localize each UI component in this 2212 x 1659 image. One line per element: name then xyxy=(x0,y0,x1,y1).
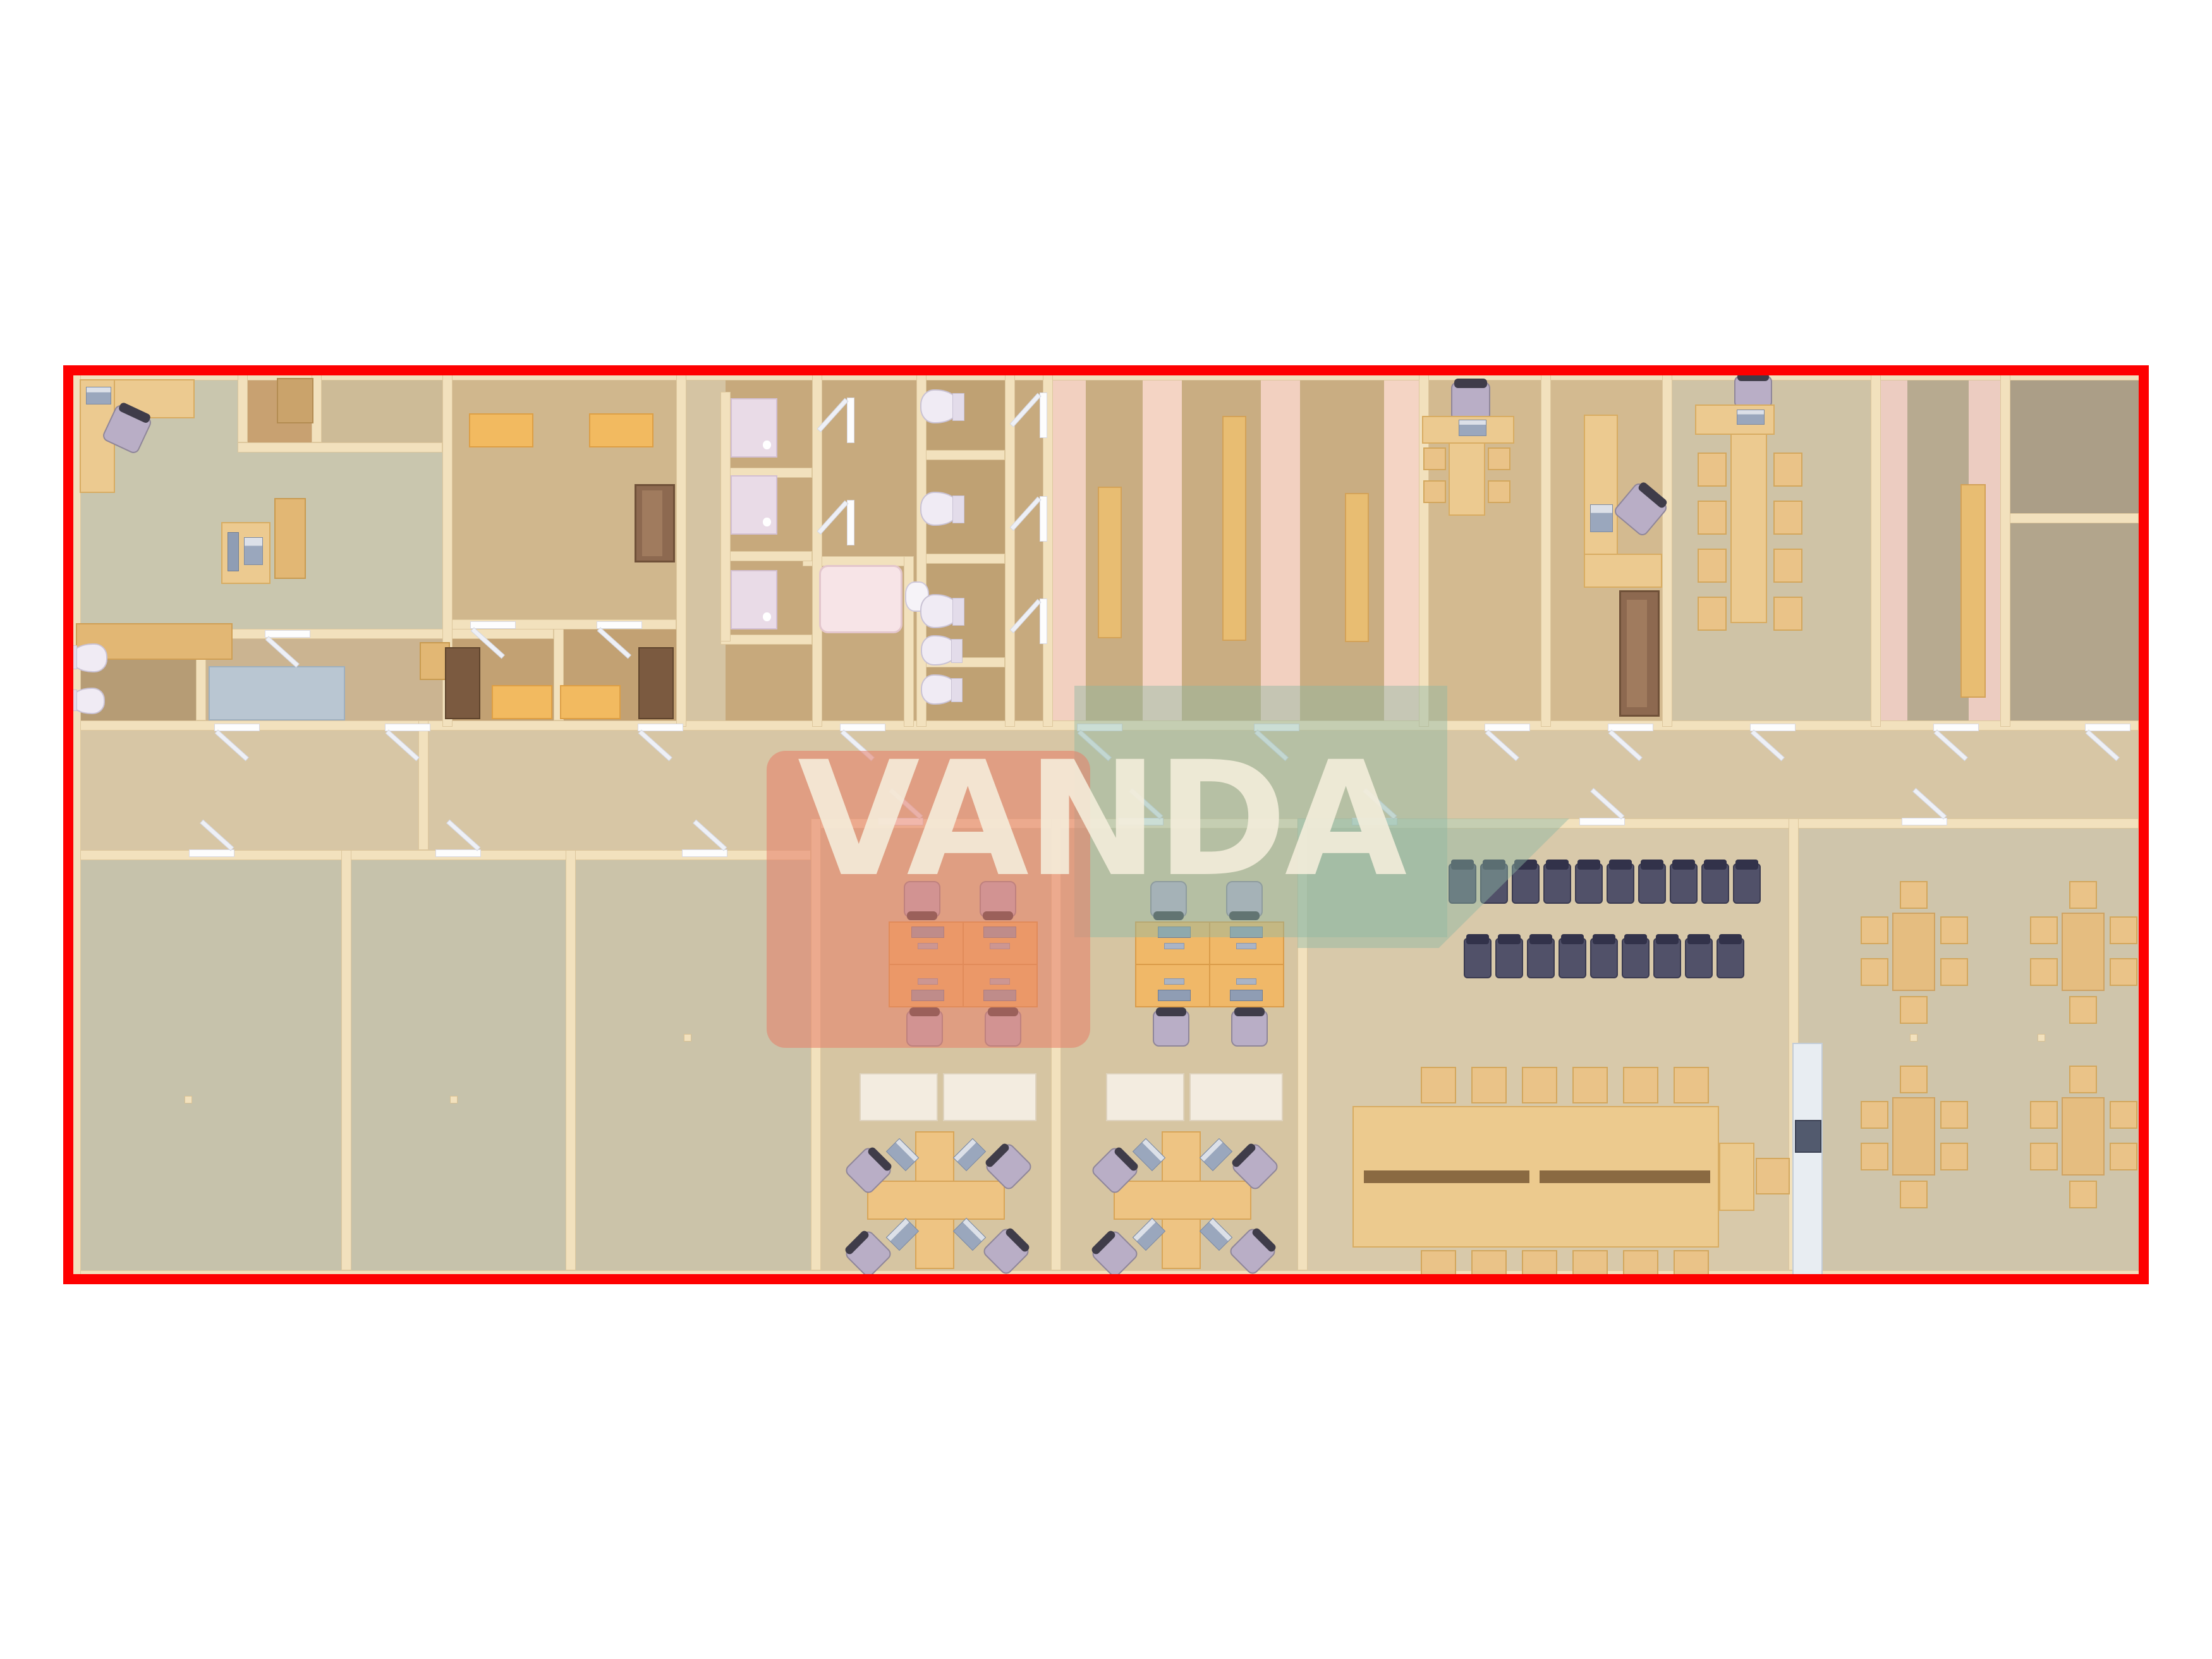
room-hall-3 xyxy=(576,860,811,1270)
stool xyxy=(1773,453,1802,487)
desk-wood xyxy=(221,522,270,584)
room-hall-1 xyxy=(76,860,341,1270)
chair-office xyxy=(904,881,940,918)
room-store-b xyxy=(562,624,676,722)
chair-navy xyxy=(1717,938,1744,978)
stool xyxy=(1423,480,1446,503)
wall xyxy=(312,370,322,442)
laptop xyxy=(1133,1138,1165,1171)
stool xyxy=(1471,1067,1507,1103)
door xyxy=(1119,781,1163,825)
stool xyxy=(1861,958,1888,986)
stool xyxy=(1900,1181,1928,1208)
door-swing xyxy=(1609,731,1642,761)
door xyxy=(190,812,234,856)
door-swing xyxy=(1486,731,1519,761)
wall xyxy=(341,850,351,1270)
room-room-far-right-1 xyxy=(2005,375,2139,513)
door-swing xyxy=(841,731,874,761)
chair-navy xyxy=(1590,938,1618,978)
door xyxy=(597,622,641,666)
laptop xyxy=(1133,1218,1165,1251)
stool xyxy=(1698,597,1727,631)
credenza xyxy=(943,1073,1036,1121)
stool xyxy=(1522,1067,1557,1103)
chair-office xyxy=(1150,881,1187,918)
chair-office xyxy=(1090,1229,1139,1279)
chair-office xyxy=(1231,1010,1268,1047)
sofa-v xyxy=(635,484,675,562)
door-swing xyxy=(889,789,922,819)
room-open-office-1 xyxy=(821,829,1051,1270)
chair-navy xyxy=(1733,863,1761,904)
door-leaf xyxy=(1255,724,1299,731)
door-leaf xyxy=(683,850,727,856)
wall xyxy=(71,370,81,1280)
keyboard xyxy=(990,978,1010,985)
wall xyxy=(418,720,428,850)
wall xyxy=(916,370,927,727)
wall xyxy=(916,554,1005,564)
floor-stripe xyxy=(1969,375,2000,727)
keyboard xyxy=(918,978,938,985)
wall xyxy=(812,370,822,727)
monitor xyxy=(911,990,944,1001)
desk-wood xyxy=(1449,442,1485,516)
column xyxy=(450,1096,458,1103)
door-swing xyxy=(598,628,631,659)
laptop xyxy=(86,387,111,404)
room-base-floor xyxy=(71,370,2149,1280)
room-cafeteria xyxy=(1799,829,2139,1270)
chair-navy xyxy=(1512,863,1540,904)
door-leaf xyxy=(1119,818,1163,825)
stool xyxy=(2110,1101,2137,1129)
desk-wood xyxy=(1695,404,1775,435)
stool xyxy=(1572,1250,1608,1275)
wall xyxy=(554,629,564,720)
xbar-h xyxy=(1114,1181,1251,1220)
door-swing xyxy=(639,731,672,761)
stool xyxy=(1572,1067,1608,1103)
chair-office xyxy=(1226,881,1263,918)
wall xyxy=(916,657,1005,667)
cabinet-orange xyxy=(420,642,450,680)
door xyxy=(1934,724,1978,769)
stool xyxy=(2069,881,2097,909)
door xyxy=(1485,724,1529,769)
chair-navy xyxy=(1638,863,1666,904)
wall xyxy=(904,556,914,727)
wall xyxy=(71,720,2139,731)
stool xyxy=(2030,958,2058,986)
chair-office xyxy=(843,1145,893,1195)
door xyxy=(1255,724,1299,769)
room-shower-stalls xyxy=(726,375,812,727)
table-orange xyxy=(560,685,621,719)
door-swing xyxy=(1011,394,1041,427)
chair-navy xyxy=(1701,863,1729,904)
toilet xyxy=(71,643,107,672)
room-room-far-right-2 xyxy=(2005,523,2139,727)
room-closet-b xyxy=(317,375,442,442)
wall xyxy=(1662,370,1672,727)
shower-tray xyxy=(731,475,777,535)
laptop xyxy=(953,1218,986,1251)
chair-office xyxy=(1734,375,1772,408)
xbar-h xyxy=(867,1181,1005,1220)
room-conference-hall xyxy=(1308,829,1789,1270)
plan-outer-border xyxy=(0,0,2212,1659)
stool xyxy=(2030,1143,2058,1170)
cabinet-wood xyxy=(277,378,313,423)
wall xyxy=(1005,370,1015,727)
door-swing xyxy=(693,820,726,851)
wall xyxy=(1297,818,1308,1270)
door-swing xyxy=(216,731,248,761)
door-leaf xyxy=(848,501,854,545)
bench xyxy=(1345,493,1369,642)
wall xyxy=(1789,818,1799,1270)
floor-stripe xyxy=(1053,375,1086,727)
shower-tray xyxy=(731,570,777,629)
wall xyxy=(442,619,676,629)
table-orange xyxy=(469,413,533,447)
xbar-v xyxy=(915,1131,954,1269)
keyboard xyxy=(1164,978,1184,985)
stool xyxy=(1488,447,1510,470)
column xyxy=(1910,1034,1917,1042)
door xyxy=(878,781,923,825)
wall xyxy=(811,818,2139,829)
bench xyxy=(1222,416,1246,641)
cabinet-orange xyxy=(274,498,306,579)
chair-navy xyxy=(1543,863,1571,904)
bench xyxy=(1960,484,1986,698)
table-tan xyxy=(1892,913,1935,991)
door xyxy=(1002,393,1047,437)
keyboard xyxy=(990,943,1010,949)
room-meeting-long xyxy=(1672,375,1871,727)
door xyxy=(471,622,515,666)
laptop xyxy=(1590,504,1613,532)
door-swing xyxy=(1591,789,1624,819)
table-tan xyxy=(2062,1097,2105,1176)
room-manager-office xyxy=(1546,375,1662,727)
door-swing xyxy=(1751,731,1784,761)
wall xyxy=(676,370,686,727)
wall xyxy=(238,370,248,442)
desk-wood xyxy=(1584,554,1662,588)
chair-navy xyxy=(1670,863,1698,904)
wall xyxy=(1051,818,1061,1270)
sofa-v xyxy=(1619,590,1660,717)
column xyxy=(684,1034,691,1042)
wall xyxy=(1043,370,1053,727)
room-open-office-2 xyxy=(1061,829,1297,1270)
wall xyxy=(238,442,442,453)
stool xyxy=(2110,1143,2137,1170)
floor-stripe xyxy=(1261,375,1300,727)
chair-navy xyxy=(1527,938,1555,978)
door-swing xyxy=(386,731,419,761)
stool xyxy=(1421,1067,1456,1103)
door xyxy=(1352,781,1397,825)
monitor xyxy=(1230,927,1263,938)
door-leaf xyxy=(1751,724,1795,731)
door xyxy=(810,501,854,545)
room-lounge-room xyxy=(447,375,676,727)
keyboard xyxy=(1164,943,1184,949)
xbar-v xyxy=(1162,1131,1201,1269)
chair-office xyxy=(985,1010,1021,1047)
desk-cluster xyxy=(1135,921,1284,1007)
door-leaf xyxy=(841,724,885,731)
chair-navy xyxy=(1449,863,1476,904)
chair-navy xyxy=(1480,863,1508,904)
stool xyxy=(2110,916,2137,944)
room-closet-a xyxy=(243,375,312,442)
wall xyxy=(803,556,914,566)
chair-navy xyxy=(1653,938,1681,978)
column xyxy=(2038,1034,2045,1042)
toilet xyxy=(920,594,959,628)
table-orange xyxy=(589,413,653,447)
monitor xyxy=(983,927,1016,938)
chair-navy xyxy=(1575,863,1603,904)
chair-office xyxy=(1230,1141,1280,1191)
door xyxy=(683,812,727,856)
wall xyxy=(2139,370,2149,1280)
toilet xyxy=(71,688,105,714)
laptop xyxy=(1459,420,1486,436)
desk-wood xyxy=(80,379,115,493)
room-hall-2 xyxy=(351,860,566,1270)
door-leaf xyxy=(1040,497,1047,541)
stool xyxy=(1756,1158,1790,1194)
stool xyxy=(1861,1101,1888,1129)
counter-tan xyxy=(76,623,233,660)
chair-office xyxy=(1153,1010,1189,1047)
keyboard xyxy=(1236,943,1256,949)
stool xyxy=(1698,501,1727,535)
wall xyxy=(71,850,811,860)
stool xyxy=(1421,1250,1456,1275)
chair-navy xyxy=(1464,938,1492,978)
door-leaf xyxy=(1078,724,1122,731)
stool xyxy=(1861,916,1888,944)
toilet xyxy=(921,635,957,665)
stool xyxy=(1698,549,1727,583)
toilet xyxy=(920,492,959,526)
wall xyxy=(1541,370,1551,727)
door xyxy=(1751,724,1795,769)
door-leaf xyxy=(190,850,234,856)
desk-wood xyxy=(1422,416,1514,444)
door-leaf xyxy=(638,724,683,731)
wall xyxy=(566,850,576,1270)
table-orange xyxy=(492,685,552,719)
chair-office xyxy=(1227,1226,1277,1276)
door xyxy=(841,724,885,769)
wall xyxy=(71,370,2149,380)
door-leaf xyxy=(597,622,641,628)
door-swing xyxy=(471,628,504,659)
door-leaf xyxy=(1040,393,1047,437)
door xyxy=(638,724,683,769)
watermark-teal-corner-block xyxy=(1297,818,1569,948)
door-swing xyxy=(1913,789,1946,819)
wall xyxy=(442,370,453,727)
stool xyxy=(1773,597,1802,631)
stool xyxy=(2069,1181,2097,1208)
laptop xyxy=(1200,1138,1232,1171)
wall xyxy=(811,818,821,1270)
stool xyxy=(1900,996,1928,1024)
floor-stripe xyxy=(1143,375,1182,727)
monitor xyxy=(911,927,944,938)
wardrobe xyxy=(445,647,480,719)
chair-navy xyxy=(1607,863,1634,904)
stool xyxy=(1488,480,1510,503)
floor-plan-render: VANDA xyxy=(0,0,2212,1659)
laptop xyxy=(244,537,263,565)
room-corridor-right xyxy=(811,726,2139,818)
stool xyxy=(1698,453,1727,487)
stool xyxy=(1900,881,1928,909)
room-meeting-small xyxy=(1424,375,1541,727)
kitchen-counter xyxy=(1792,1043,1823,1277)
wall xyxy=(2000,513,2139,523)
desk-wood xyxy=(1584,415,1618,588)
stool xyxy=(2069,1066,2097,1093)
stool xyxy=(2030,1101,2058,1129)
door-leaf xyxy=(471,622,515,628)
column xyxy=(185,1096,192,1103)
monitor xyxy=(1158,927,1191,938)
wall xyxy=(720,551,812,561)
credenza xyxy=(1189,1073,1283,1121)
credenza xyxy=(860,1073,938,1121)
room-store-a xyxy=(447,624,557,722)
stool xyxy=(1900,1066,1928,1093)
door-swing xyxy=(266,637,299,667)
toilet xyxy=(921,674,957,705)
monitor xyxy=(983,990,1016,1001)
room-bath-aisle xyxy=(1010,375,1043,727)
door xyxy=(265,631,310,675)
chair-office xyxy=(1090,1145,1139,1195)
door xyxy=(1902,781,1947,825)
wall xyxy=(720,635,812,645)
red-border xyxy=(63,365,2149,1284)
chair-office xyxy=(1612,481,1669,538)
stool xyxy=(1940,958,1968,986)
door-swing xyxy=(2086,731,2119,761)
door xyxy=(810,398,854,442)
bench xyxy=(1098,487,1122,638)
watermark-text: VANDA xyxy=(798,741,1404,899)
door xyxy=(386,724,430,769)
door xyxy=(1608,724,1653,769)
room-office-executive xyxy=(76,375,442,727)
laptop xyxy=(886,1218,919,1251)
chair-office xyxy=(843,1229,893,1279)
stool xyxy=(1940,1101,1968,1129)
wall xyxy=(916,450,1005,460)
monitor xyxy=(1158,990,1191,1001)
stool xyxy=(1773,501,1802,535)
door xyxy=(1078,724,1122,769)
door-swing xyxy=(1363,789,1396,819)
room-bath-middle xyxy=(817,375,916,727)
chair-navy xyxy=(1685,938,1713,978)
door-leaf xyxy=(1608,724,1653,731)
door-swing xyxy=(1129,789,1162,819)
sink xyxy=(905,581,929,612)
door-leaf xyxy=(878,818,923,825)
door xyxy=(1002,497,1047,541)
desk-wood xyxy=(80,379,195,418)
door-leaf xyxy=(1485,724,1529,731)
door-leaf xyxy=(1040,599,1047,643)
toilet xyxy=(920,389,959,423)
door-swing xyxy=(200,820,233,851)
stool xyxy=(1522,1250,1557,1275)
stool xyxy=(2110,958,2137,986)
board-table xyxy=(1352,1106,1719,1248)
monitor xyxy=(1230,990,1263,1001)
chair-office xyxy=(983,1141,1033,1191)
room-locker-hall xyxy=(1048,375,1419,727)
desk-cluster xyxy=(889,921,1038,1007)
table-tan xyxy=(2062,913,2105,991)
stool xyxy=(1861,1143,1888,1170)
door-leaf xyxy=(2086,724,2130,731)
wall xyxy=(1871,370,1881,727)
chair-office xyxy=(981,1226,1031,1276)
room-corridor-left xyxy=(76,726,811,850)
table-blue xyxy=(209,666,345,720)
door-leaf xyxy=(436,850,480,856)
watermark-salmon-block xyxy=(767,751,1090,1048)
stool xyxy=(1471,1250,1507,1275)
door-swing xyxy=(818,399,848,432)
wall xyxy=(196,629,206,720)
door xyxy=(436,812,480,856)
credenza xyxy=(1106,1073,1184,1121)
chair-navy xyxy=(1495,938,1523,978)
table-tan xyxy=(1892,1097,1935,1176)
groove xyxy=(1364,1170,1529,1183)
room-reception-room xyxy=(201,634,554,722)
monitor-v xyxy=(228,532,239,571)
floor-stripe xyxy=(1384,375,1419,727)
door xyxy=(215,724,259,769)
floor-plan-layers xyxy=(0,0,2212,1659)
stool xyxy=(1674,1067,1709,1103)
door-swing xyxy=(1078,731,1111,761)
wall xyxy=(1419,370,1429,727)
laptop xyxy=(886,1138,919,1171)
door-swing xyxy=(1011,600,1041,633)
wall xyxy=(2000,370,2010,727)
stool xyxy=(1773,549,1802,583)
door-leaf xyxy=(265,631,310,637)
watermark-teal-block xyxy=(1074,686,1447,937)
wardrobe xyxy=(638,647,674,719)
board-table xyxy=(1719,1143,1754,1211)
